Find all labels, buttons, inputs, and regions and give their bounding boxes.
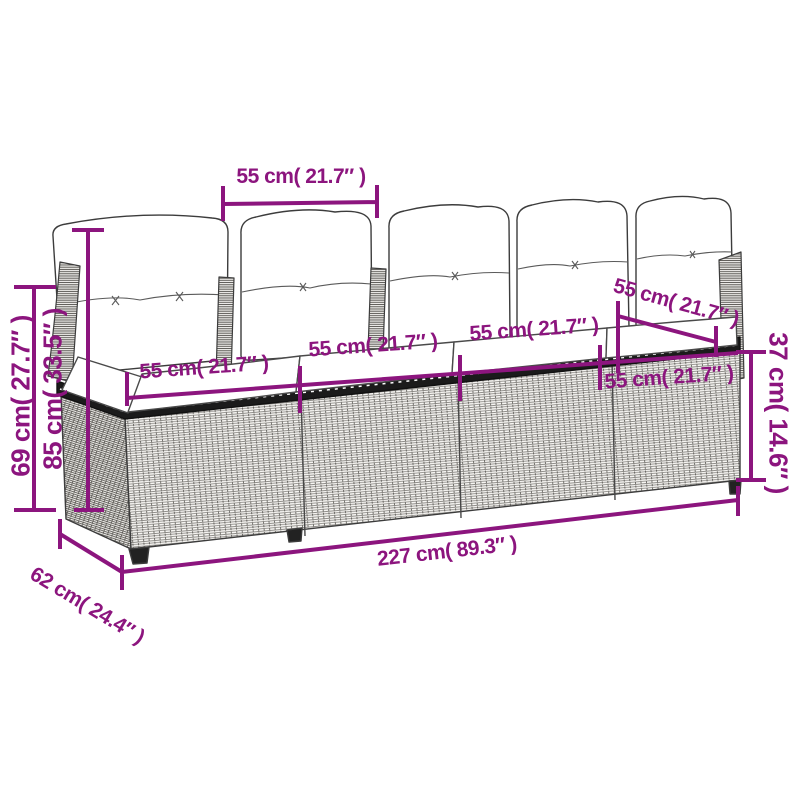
sofa-foot (287, 528, 302, 542)
dimension-diagram: 55 cm( 21.7″ ) 55 cm( 21.7″ ) 55 cm( 21.… (0, 0, 800, 800)
dim-label-height-left-outer: 69 cm( 27.7″ ) (6, 315, 37, 477)
dim-label-pillow-width: 55 cm( 21.7″ ) (236, 165, 365, 189)
rattan-sofa-line-drawing (0, 0, 800, 800)
sofa-foot (129, 547, 149, 564)
dim-label-height-left-inner: 85 cm( 33.5″ ) (38, 308, 69, 470)
dim-label-seat-height-right: 37 cm( 14.6″ ) (763, 332, 794, 494)
